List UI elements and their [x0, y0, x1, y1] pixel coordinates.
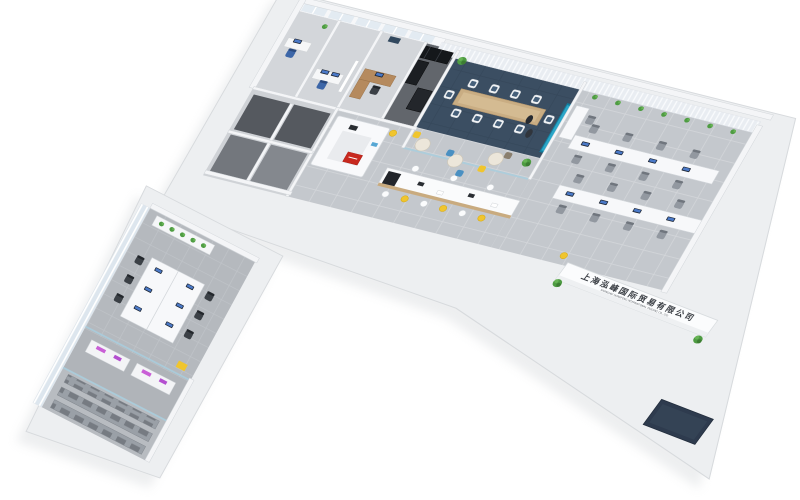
floorplan-svg: 上海泓峰国际贸易有限公司 SHANGHAI HONGFENG INTERNATI…	[0, 0, 800, 500]
render-canvas: 上海泓峰国际贸易有限公司 SHANGHAI HONGFENG INTERNATI…	[0, 0, 800, 500]
